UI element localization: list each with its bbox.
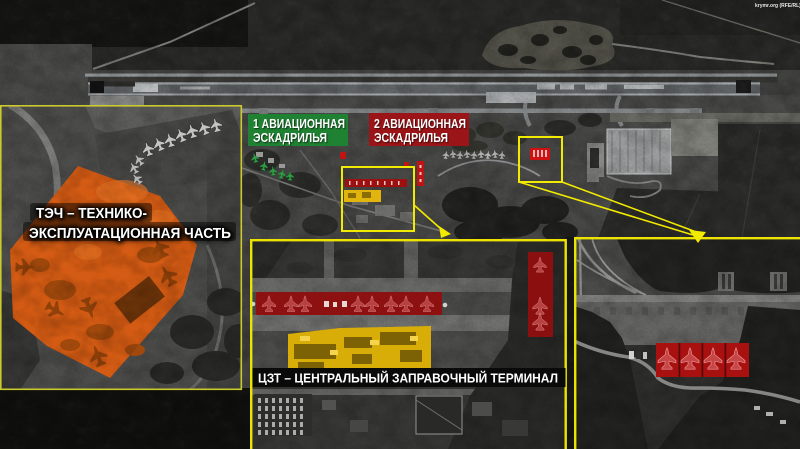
svg-text:ТЭЧ – ТЕХНИКО-: ТЭЧ – ТЕХНИКО- [36,206,147,222]
svg-text:ЭКСПЛУАТАЦИОННАЯ ЧАСТЬ: ЭКСПЛУАТАЦИОННАЯ ЧАСТЬ [29,226,231,242]
svg-text:krymr.org (RFE/RL): krymr.org (RFE/RL) [755,3,800,9]
svg-text:ЭСКАДРИЛЬЯ: ЭСКАДРИЛЬЯ [374,131,448,145]
svg-text:ЭСКАДРИЛЬЯ: ЭСКАДРИЛЬЯ [253,131,327,145]
svg-text:1 АВИАЦИОННАЯ: 1 АВИАЦИОННАЯ [253,117,345,131]
svg-text:2 АВИАЦИОННАЯ: 2 АВИАЦИОННАЯ [374,117,466,131]
svg-text:ЦЗТ – ЦЕНТРАЛЬНЫЙ ЗАПРАВОЧНЫЙ: ЦЗТ – ЦЕНТРАЛЬНЫЙ ЗАПРАВОЧНЫЙ ТЕРМИНАЛ [258,371,558,386]
